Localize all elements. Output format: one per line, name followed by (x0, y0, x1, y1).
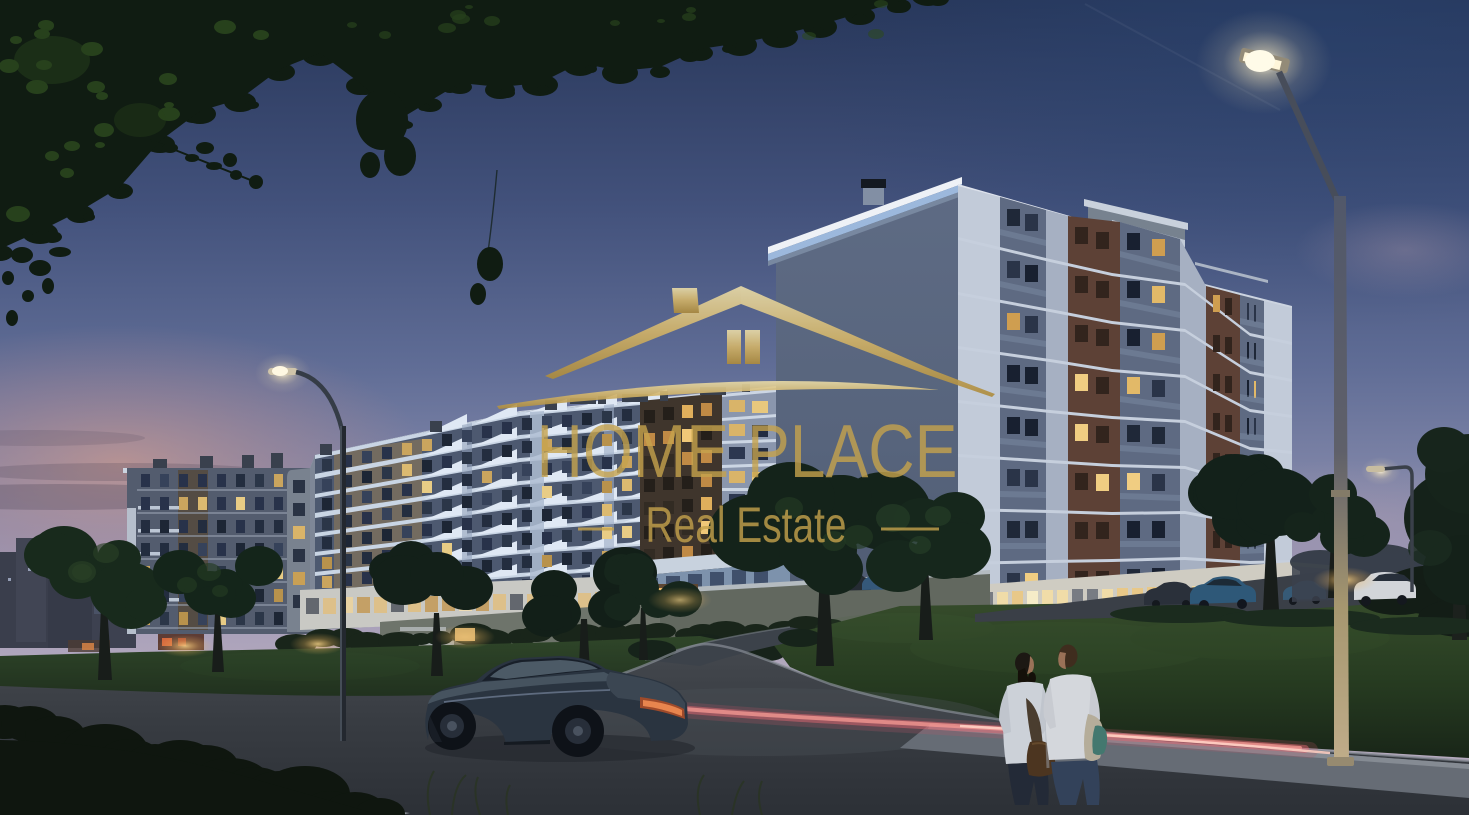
svg-text:HOME PLACE: HOME PLACE (537, 409, 958, 493)
svg-text:Real Estate: Real Estate (646, 497, 847, 553)
